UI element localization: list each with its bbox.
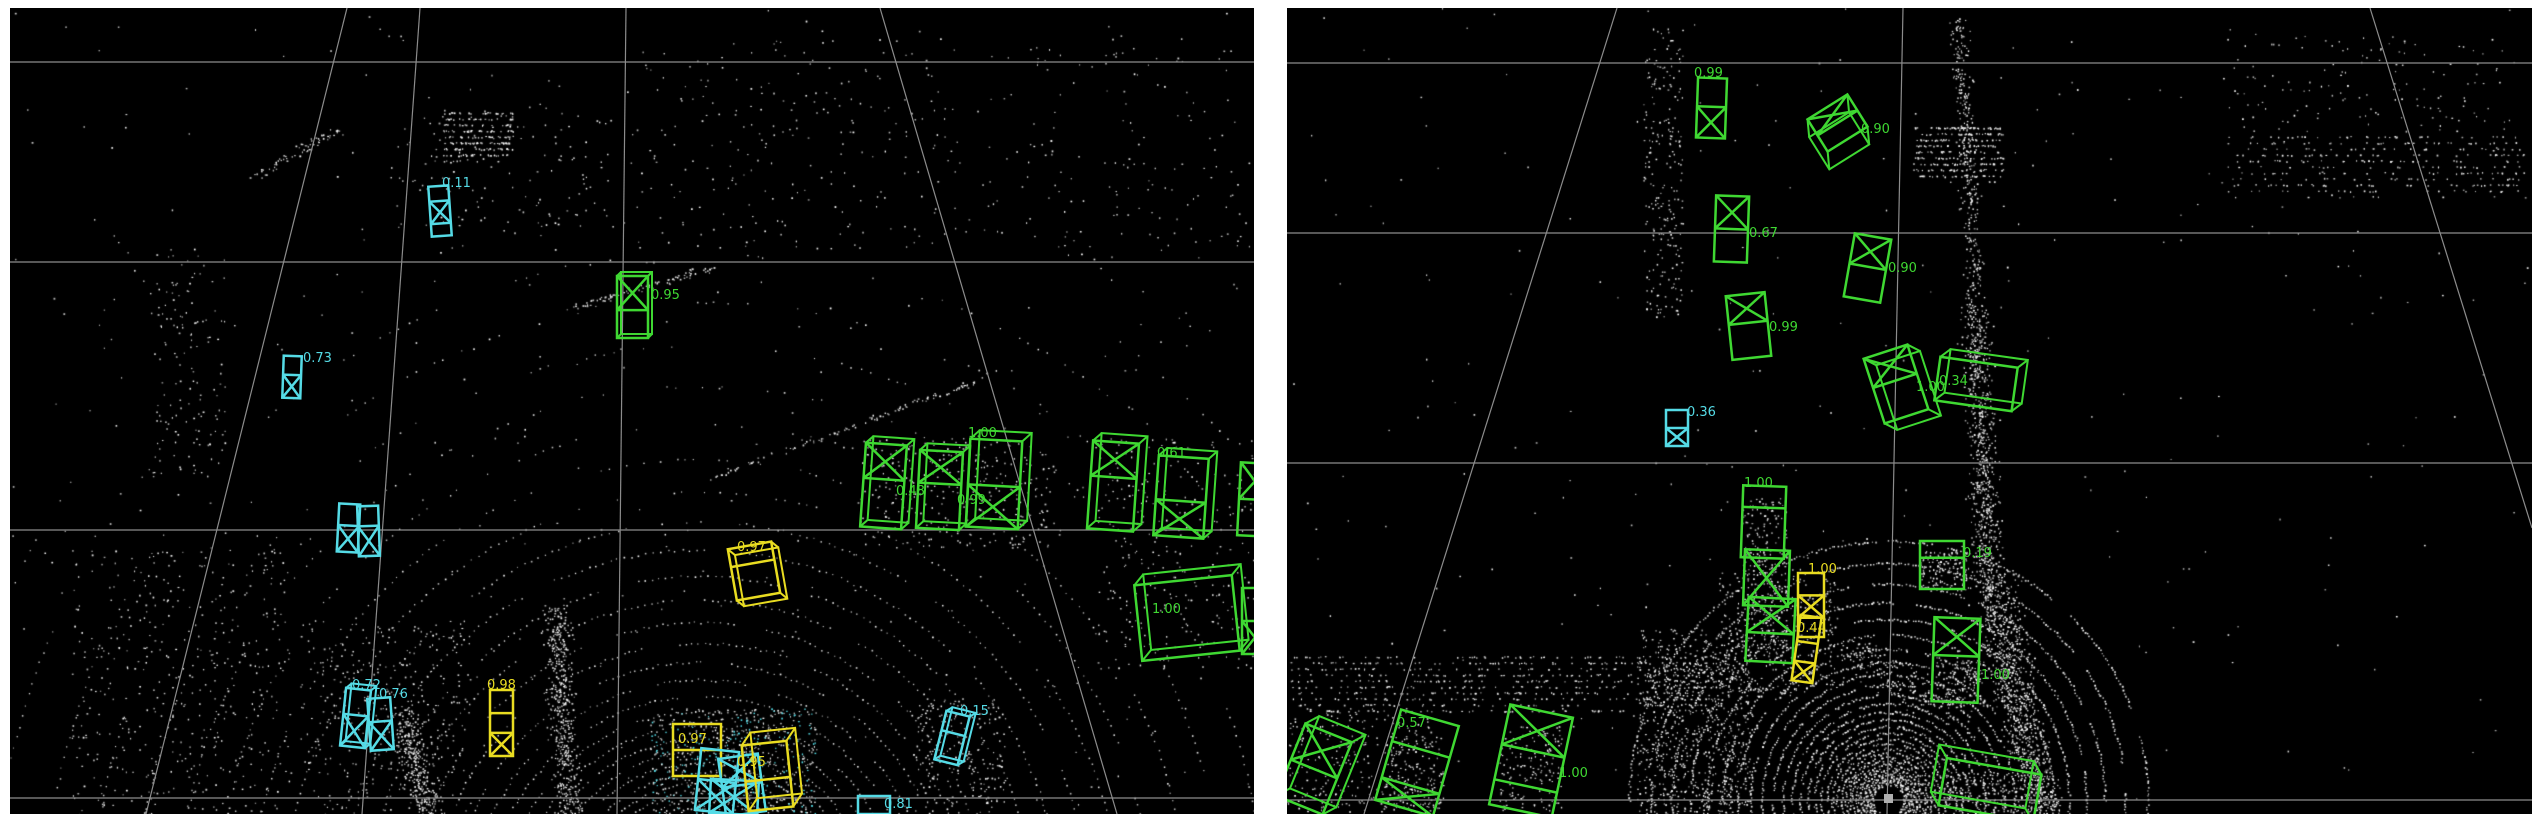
lidar-viewer-page: 0.110.950.730.480.991.000.611.000.970.72… (0, 0, 2542, 820)
pointcloud-canvas-right[interactable] (1287, 8, 2532, 814)
bev-view-panel-right[interactable]: 0.990.900.670.900.991.000.341.000.191.00… (1287, 8, 2532, 814)
pointcloud-canvas-left[interactable] (10, 8, 1254, 814)
bev-view-panel-left[interactable]: 0.110.950.730.480.991.000.611.000.970.72… (10, 8, 1254, 814)
